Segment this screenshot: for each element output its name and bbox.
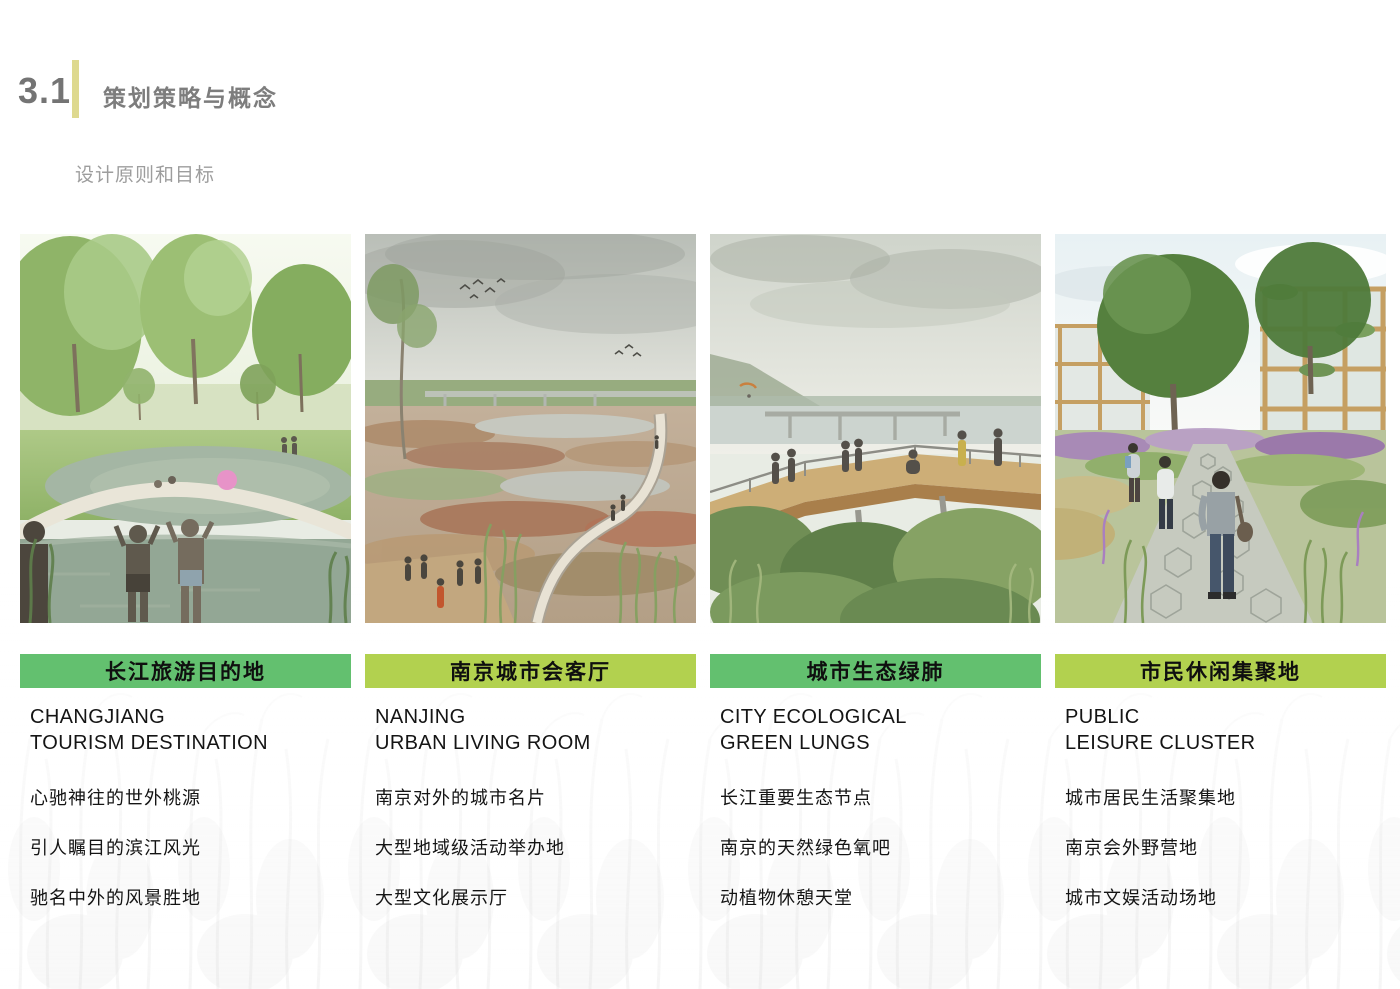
bullets-living-room: 南京对外的城市名片 大型地域级活动举办地 大型文化展示厅	[365, 784, 696, 904]
bullet-text: 长江重要生态节点	[720, 784, 1041, 804]
banner-living-room: 南京城市会客厅	[365, 654, 696, 688]
bullet-text: 动植物休憩天堂	[720, 884, 1041, 904]
concept-columns: 长江旅游目的地 CHANGJIANG TOURISM DESTINATION 心…	[20, 234, 1386, 934]
bullet-text: 驰名中外的风景胜地	[30, 884, 351, 904]
bullet-text: 城市居民生活聚集地	[1065, 784, 1386, 804]
title-living-room: NANJING URBAN LIVING ROOM	[365, 704, 696, 756]
banner-leisure-cluster: 市民休闲集聚地	[1055, 654, 1386, 688]
bullets-green-lungs: 长江重要生态节点 南京的天然绿色氧吧 动植物休憩天堂	[710, 784, 1041, 904]
slide-page: { "header": { "section_number": "3.1", "…	[0, 0, 1400, 989]
rendering-park-pond-image	[20, 234, 351, 623]
bullets-leisure-cluster: 城市居民生活聚集地 南京会外野营地 城市文娱活动场地	[1055, 784, 1386, 904]
column-changjiang-tourism: 长江旅游目的地 CHANGJIANG TOURISM DESTINATION 心…	[20, 234, 351, 934]
bullet-text: 南京的天然绿色氧吧	[720, 834, 1041, 854]
column-green-lungs: 城市生态绿肺 CITY ECOLOGICAL GREEN LUNGS 长江重要生…	[710, 234, 1041, 934]
page-subtitle: 设计原则和目标	[75, 160, 215, 187]
banner-changjiang: 长江旅游目的地	[20, 654, 351, 688]
rendering-wetland-boardwalk-image	[365, 234, 696, 623]
title-changjiang: CHANGJIANG TOURISM DESTINATION	[20, 704, 351, 756]
column-leisure-cluster: 市民休闲集聚地 PUBLIC LEISURE CLUSTER 城市居民生活聚集地…	[1055, 234, 1386, 934]
bullet-text: 南京会外野营地	[1065, 834, 1386, 854]
rendering-garden-path-image	[1055, 234, 1386, 623]
bullet-text: 大型文化展示厅	[375, 884, 696, 904]
bullet-text: 南京对外的城市名片	[375, 784, 696, 804]
section-number: 3.1	[18, 70, 71, 112]
bullet-text: 大型地域级活动举办地	[375, 834, 696, 854]
accent-bar	[72, 60, 79, 118]
bullet-text: 城市文娱活动场地	[1065, 884, 1386, 904]
title-leisure-cluster: PUBLIC LEISURE CLUSTER	[1055, 704, 1386, 756]
banner-green-lungs: 城市生态绿肺	[710, 654, 1041, 688]
bullet-text: 心驰神往的世外桃源	[30, 784, 351, 804]
bullet-text: 引人瞩目的滨江风光	[30, 834, 351, 854]
title-green-lungs: CITY ECOLOGICAL GREEN LUNGS	[710, 704, 1041, 756]
column-urban-living-room: 南京城市会客厅 NANJING URBAN LIVING ROOM 南京对外的城…	[365, 234, 696, 934]
bullets-changjiang: 心驰神往的世外桃源 引人瞩目的滨江风光 驰名中外的风景胜地	[20, 784, 351, 904]
rendering-overlook-bridge-image	[710, 234, 1041, 623]
page-title: 策划策略与概念	[103, 79, 278, 113]
